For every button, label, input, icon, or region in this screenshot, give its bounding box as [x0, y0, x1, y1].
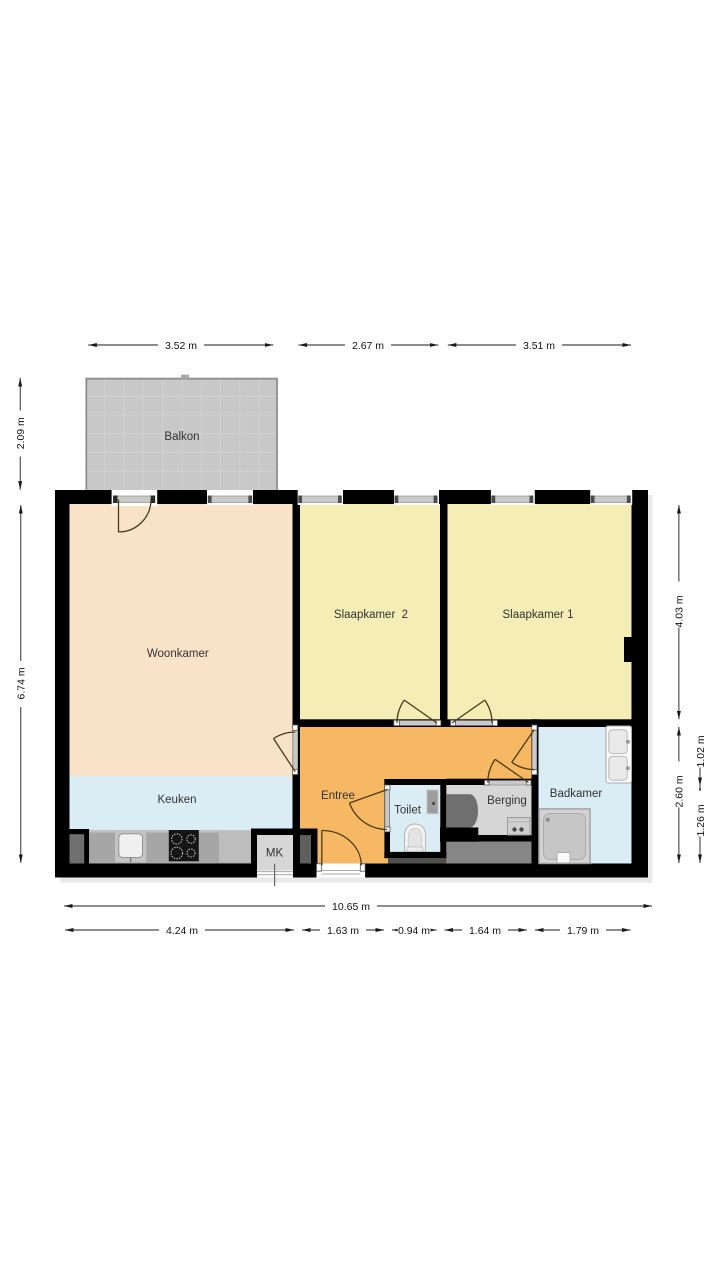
svg-text:2.60 m: 2.60 m [674, 775, 686, 807]
svg-text:4.03 m: 4.03 m [674, 595, 686, 627]
svg-text:Balkon: Balkon [164, 431, 199, 443]
svg-text:Keuken: Keuken [157, 794, 196, 806]
svg-text:3.52 m: 3.52 m [165, 340, 197, 352]
svg-text:1.79 m: 1.79 m [567, 925, 599, 937]
svg-text:1.26 m: 1.26 m [695, 804, 707, 836]
svg-text:1.64 m: 1.64 m [469, 925, 501, 937]
svg-text:Slaapkamer 2: Slaapkamer 2 [334, 609, 408, 621]
svg-text:Slaapkamer 1: Slaapkamer 1 [503, 609, 574, 621]
svg-text:Toilet: Toilet [394, 805, 422, 817]
svg-text:MK: MK [266, 848, 284, 860]
svg-text:6.74 m: 6.74 m [16, 667, 28, 699]
svg-text:0.94 m: 0.94 m [398, 925, 430, 937]
svg-text:Woonkamer: Woonkamer [147, 648, 209, 660]
svg-text:2.67 m: 2.67 m [352, 340, 384, 352]
svg-text:Entree: Entree [321, 790, 355, 802]
svg-text:2.09 m: 2.09 m [15, 417, 27, 449]
svg-text:Berging: Berging [487, 795, 527, 807]
svg-text:4.24 m: 4.24 m [166, 925, 198, 937]
svg-text:10.65 m: 10.65 m [332, 901, 370, 913]
svg-text:Badkamer: Badkamer [550, 788, 603, 800]
svg-text:3.51 m: 3.51 m [523, 340, 555, 352]
svg-text:1.63 m: 1.63 m [327, 925, 359, 937]
svg-text:1.02 m: 1.02 m [695, 735, 707, 767]
